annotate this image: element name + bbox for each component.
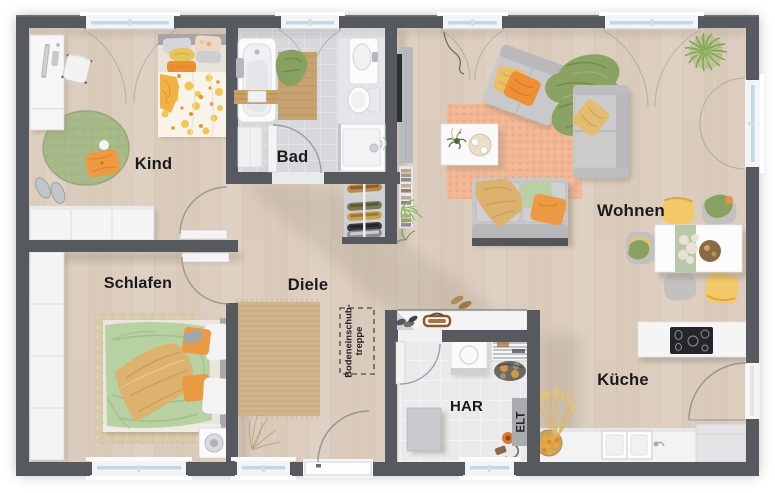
svg-text:Kind: Kind xyxy=(135,155,172,173)
svg-text:Bodeneinschub-: Bodeneinschub- xyxy=(343,304,354,377)
svg-text:Bad: Bad xyxy=(277,148,309,166)
svg-text:Schlafen: Schlafen xyxy=(104,275,172,292)
svg-text:Küche: Küche xyxy=(597,371,648,389)
svg-text:treppe: treppe xyxy=(353,327,364,356)
svg-text:Wohnen: Wohnen xyxy=(597,201,665,220)
svg-text:HAR: HAR xyxy=(450,398,483,415)
svg-text:Diele: Diele xyxy=(288,276,328,294)
svg-text:ELT: ELT xyxy=(516,412,528,433)
